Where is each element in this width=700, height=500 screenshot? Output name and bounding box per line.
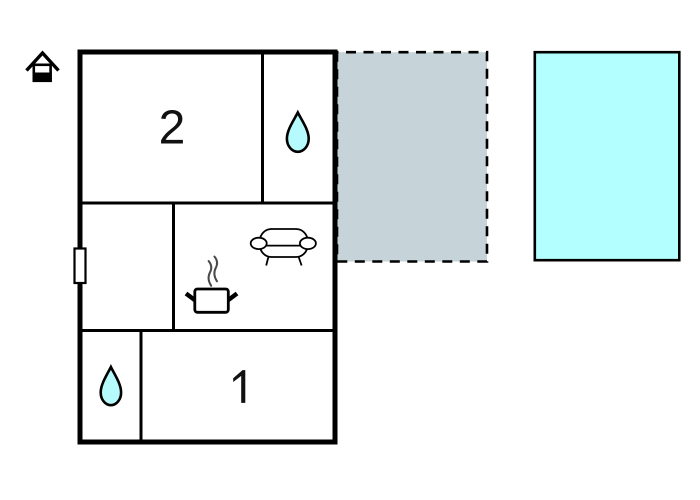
svg-text:2: 2: [159, 102, 186, 155]
